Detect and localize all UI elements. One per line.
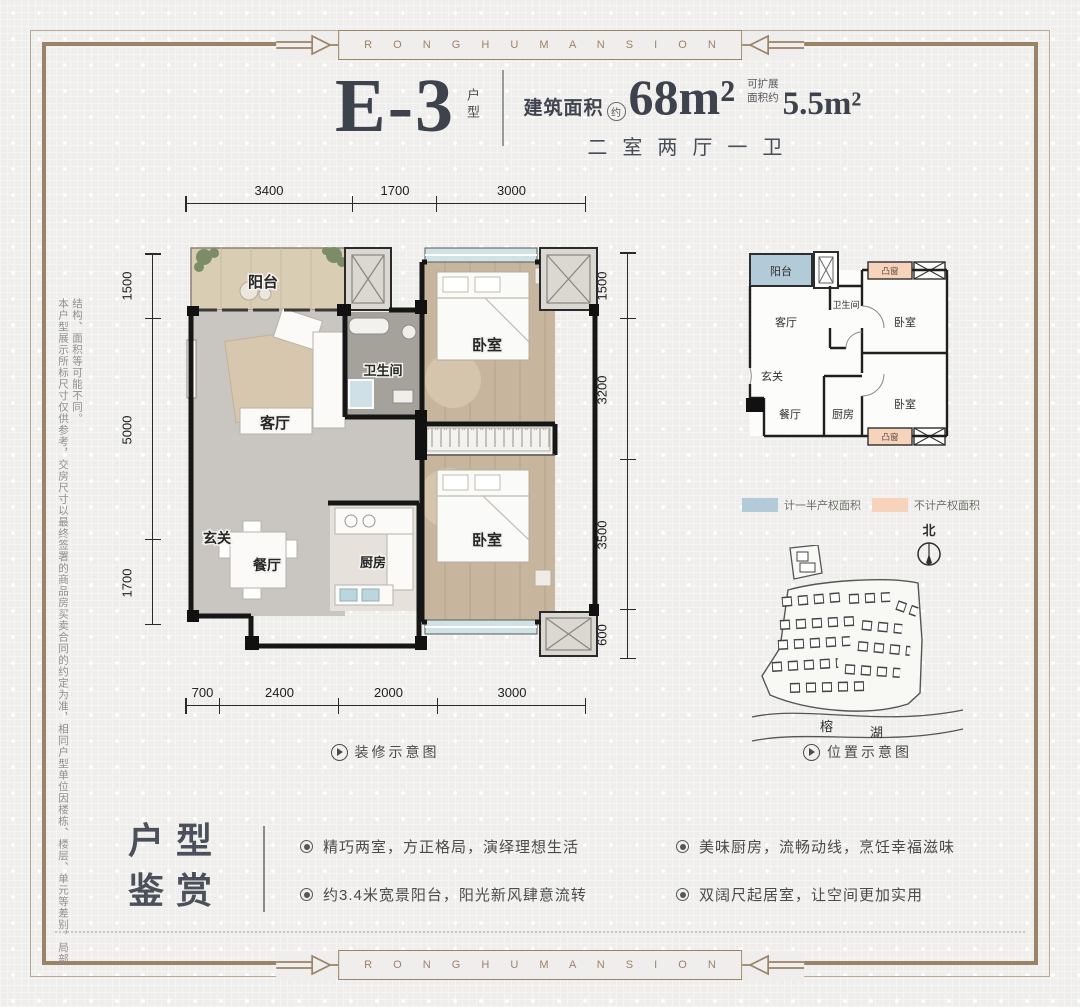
lake: 榕 湖 — [752, 710, 963, 741]
shaft — [345, 248, 391, 310]
dim-label: 1500 — [120, 272, 135, 301]
feature-bullet: 美味厨房，流畅动线，烹饪幸福滋味 — [676, 836, 955, 857]
north-label: 北 — [922, 520, 935, 539]
ornament-top: R O N G H U M A N S I O N — [276, 30, 804, 60]
mini-room-bedroom1: 卧室 — [894, 315, 916, 329]
site-cluster — [790, 545, 822, 579]
main-plan-caption: 装修示意图 — [185, 742, 585, 762]
mini-room-dining: 餐厅 — [779, 407, 801, 421]
dim-label: 3000 — [438, 685, 586, 700]
approx-badge: 约 — [607, 102, 626, 121]
site-map: 榕 湖 — [750, 545, 965, 757]
ornament-arrow-left-icon — [276, 951, 338, 979]
ornament-arrow-right-icon — [742, 31, 804, 59]
area-value: 68m² — [629, 72, 736, 122]
wardrobe — [422, 424, 555, 455]
mini-room-bedroom2: 卧室 — [894, 397, 916, 411]
bullet-icon — [676, 888, 689, 901]
bullet-icon — [676, 840, 689, 853]
mini-balcony: 阳台 — [750, 254, 812, 286]
lake-label-2: 湖 — [870, 725, 883, 740]
room-label-living: 客厅 — [259, 414, 290, 432]
dim-label: 3000 — [437, 183, 586, 198]
dim-label: 5000 — [120, 415, 135, 444]
site-map-caption: 位置示意图 — [750, 742, 965, 762]
dotted-divider — [55, 931, 1025, 933]
svg-text:阳台: 阳台 — [770, 264, 792, 278]
legend-swatch-orange — [872, 498, 908, 512]
lake-label-1: 榕 — [820, 719, 835, 734]
svg-text:凸窗: 凸窗 — [881, 432, 898, 442]
mini-room-bath: 卫生间 — [832, 299, 859, 310]
bullet-icon — [300, 888, 313, 901]
room-label-bath: 卫生间 — [363, 363, 402, 378]
bullet-icon — [300, 840, 313, 853]
title-block: E-3 户型 建筑面积 约 68m² 可扩展 面积约 5.5m² 二室两厅一卫 — [335, 66, 861, 160]
expand-value: 5.5m² — [783, 86, 862, 123]
features-title: 户型 鉴赏 — [128, 816, 224, 916]
room-label-foyer: 玄关 — [203, 530, 231, 546]
mini-floorplan: 阳台 凸窗 凸窗 客厅 卫生间 卧室 — [742, 248, 967, 468]
mini-shaft — [814, 252, 838, 288]
room-label-dining: 餐厅 — [252, 557, 281, 573]
main-floorplan: 阳台 客厅 卫生间 卧室 玄关 餐厅 厨房 卧室 — [185, 240, 605, 660]
ornament-arrow-left-icon — [276, 31, 338, 59]
play-circle-icon — [803, 744, 820, 761]
legend-swatch-blue — [742, 498, 778, 512]
mini-room-living: 客厅 — [775, 315, 797, 329]
room-label-kitchen: 厨房 — [360, 555, 386, 570]
brand-text: R O N G H U M A N S I O N — [338, 950, 742, 980]
floorplan-poster: R O N G H U M A N S I O N R O N G H U M … — [0, 0, 1080, 1007]
title-divider — [502, 70, 504, 146]
room-label-bedroom1: 卧室 — [472, 336, 502, 354]
room-label-balcony: 阳台 — [248, 273, 278, 291]
dim-label: 700 — [185, 685, 220, 700]
unit-suffix: 户型 — [463, 88, 482, 122]
legend-item-half-property: 计一半产权面积 — [742, 497, 861, 513]
dim-label: 1700 — [353, 183, 437, 198]
mini-room-foyer: 玄关 — [761, 369, 783, 383]
dim-label: 3400 — [185, 183, 353, 198]
feature-bullet: 精巧两室，方正格局，演绎理想生活 — [300, 836, 579, 857]
hall-floor — [345, 415, 422, 505]
expand-label: 可扩展 面积约 — [747, 78, 779, 104]
legend-item-no-property: 不计产权面积 — [872, 497, 980, 513]
legend: 计一半产权面积 不计产权面积 — [742, 497, 980, 513]
room-label-bedroom2: 卧室 — [472, 531, 502, 549]
layout-desc: 二室两厅一卫 — [524, 131, 862, 160]
features-divider — [263, 826, 265, 912]
svg-text:凸窗: 凸窗 — [881, 266, 898, 276]
ornament-bottom: R O N G H U M A N S I O N — [276, 950, 804, 980]
disclaimer-text: 本户型展示所标尺寸仅供参考，交房尺寸以最终签署的商品房买卖合同的约定为准，相同户… — [56, 298, 84, 966]
mini-room-kitchen: 厨房 — [832, 408, 854, 421]
unit-code: E-3 — [335, 66, 455, 146]
area-label: 建筑面积 — [524, 93, 604, 120]
ornament-arrow-right-icon — [742, 951, 804, 979]
dim-label: 1700 — [120, 568, 135, 597]
dim-label: 2000 — [339, 685, 438, 700]
dim-label: 2400 — [220, 685, 339, 700]
feature-bullet: 约3.4米宽景阳台，阳光新风肆意流转 — [300, 884, 587, 905]
brand-text: R O N G H U M A N S I O N — [338, 30, 742, 60]
feature-bullet: 双阔尺起居室，让空间更加实用 — [676, 884, 923, 905]
play-circle-icon — [331, 744, 348, 761]
